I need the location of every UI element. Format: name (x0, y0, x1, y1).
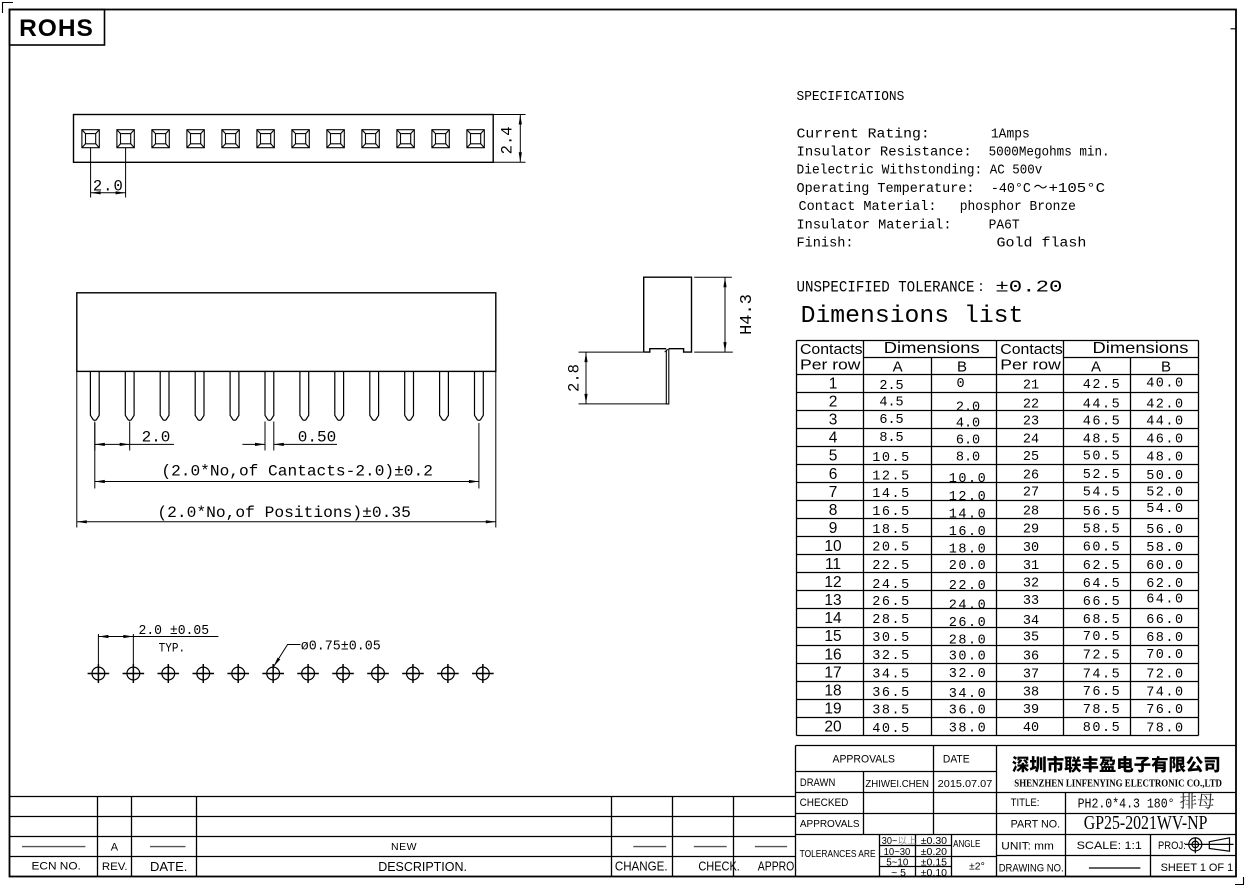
svg-text:0: 0 (956, 377, 964, 392)
svg-text:52.5: 52.5 (1083, 468, 1121, 483)
svg-text:30~: 30~ (882, 836, 898, 847)
svg-text:28: 28 (1023, 504, 1039, 519)
svg-text:5: 5 (829, 448, 838, 465)
svg-text:2.4: 2.4 (499, 126, 517, 154)
svg-text:8: 8 (829, 502, 838, 519)
svg-text:2.5: 2.5 (879, 379, 903, 394)
svg-text:±0.30: ±0.30 (921, 836, 948, 847)
svg-text:8.0: 8.0 (956, 450, 980, 465)
svg-text:2.0: 2.0 (142, 429, 171, 447)
svg-text:A: A (1091, 359, 1101, 376)
svg-text:18.0: 18.0 (949, 543, 987, 558)
svg-text:±0.20: ±0.20 (921, 847, 948, 858)
svg-text:74.0: 74.0 (1146, 685, 1184, 700)
svg-text:36.0: 36.0 (949, 703, 987, 718)
svg-text:UNSPECIFIED TOLERANCE: UNSPECIFIED TOLERANCE (797, 279, 975, 297)
svg-text:30.5: 30.5 (872, 631, 910, 646)
svg-text:27: 27 (1023, 485, 1039, 500)
svg-text:40: 40 (1023, 721, 1039, 736)
svg-text:Dimensions: Dimensions (1093, 340, 1189, 357)
svg-text:6: 6 (829, 466, 838, 483)
svg-text:4: 4 (829, 430, 838, 447)
svg-text:72.5: 72.5 (1083, 648, 1121, 663)
svg-text:Contacts: Contacts (1000, 341, 1063, 358)
svg-text:26.0: 26.0 (949, 616, 987, 631)
svg-text:22.5: 22.5 (872, 559, 910, 574)
svg-text:ø0.75±0.05: ø0.75±0.05 (301, 640, 381, 655)
svg-text:ECN NO.: ECN NO. (32, 861, 81, 873)
svg-text:32: 32 (1023, 577, 1039, 592)
svg-text:PA6T: PA6T (989, 218, 1020, 233)
svg-text:54.0: 54.0 (1146, 502, 1184, 517)
svg-text:24.0: 24.0 (949, 599, 987, 614)
svg-text:GP25-2021WV-NP: GP25-2021WV-NP (1084, 813, 1208, 834)
svg-text:38.0: 38.0 (949, 721, 987, 736)
svg-text:A: A (893, 359, 903, 376)
svg-text:22: 22 (1023, 397, 1039, 412)
svg-text:Insulator Resistance:: Insulator Resistance: (797, 146, 972, 161)
svg-text:60.0: 60.0 (1146, 559, 1184, 574)
svg-text:Per row: Per row (1000, 357, 1061, 374)
svg-text:76.5: 76.5 (1083, 685, 1121, 700)
svg-text:50.5: 50.5 (1083, 450, 1121, 465)
svg-text:(2.0*No,of Cantacts-2.0)±0.2: (2.0*No,of Cantacts-2.0)±0.2 (161, 463, 433, 481)
svg-text:DRAWN: DRAWN (800, 777, 835, 789)
svg-text:32.0: 32.0 (949, 667, 987, 682)
svg-text:66.5: 66.5 (1083, 595, 1121, 610)
svg-text:20.5: 20.5 (872, 540, 910, 555)
svg-text:SHENZHEN LINFENYING ELECTRONIC: SHENZHEN LINFENYING ELECTRONIC CO.,LTD (1014, 778, 1222, 790)
svg-text:5~10: 5~10 (886, 858, 909, 869)
svg-text:DATE: DATE (943, 754, 970, 766)
svg-text:34: 34 (1023, 614, 1039, 629)
svg-text:52.0: 52.0 (1146, 485, 1184, 500)
svg-text:54.5: 54.5 (1083, 485, 1121, 500)
svg-text:30.0: 30.0 (949, 649, 987, 664)
svg-text:70.0: 70.0 (1146, 648, 1184, 663)
svg-text:14.0: 14.0 (949, 507, 987, 522)
svg-text:80.5: 80.5 (1083, 721, 1121, 736)
svg-text:Insulator Material:: Insulator Material: (797, 218, 952, 233)
svg-text:62.5: 62.5 (1083, 559, 1121, 574)
svg-text:PART NO.: PART NO. (1011, 819, 1061, 831)
svg-text:36: 36 (1023, 649, 1039, 664)
svg-text:68.5: 68.5 (1083, 613, 1121, 628)
svg-text:SCALE: 1:1: SCALE: 1:1 (1077, 840, 1142, 852)
svg-text:NEW: NEW (391, 841, 417, 853)
svg-text:Per row: Per row (800, 357, 861, 374)
svg-text:20.0: 20.0 (949, 559, 987, 574)
svg-text:23: 23 (1023, 415, 1039, 430)
svg-text:62.0: 62.0 (1146, 577, 1184, 592)
svg-text:34.5: 34.5 (872, 667, 910, 682)
svg-text:PH2.0*4.3 180°: PH2.0*4.3 180° (1078, 798, 1175, 813)
svg-text:B: B (957, 359, 967, 376)
svg-text:7: 7 (829, 484, 838, 501)
svg-text:64.0: 64.0 (1146, 593, 1184, 608)
svg-text:31: 31 (1023, 559, 1039, 574)
svg-text:12: 12 (824, 574, 841, 591)
svg-text:Finish:: Finish: (797, 237, 854, 252)
svg-text:74.5: 74.5 (1083, 667, 1121, 682)
svg-text:phosphor Bronze: phosphor Bronze (960, 200, 1076, 215)
svg-text:25: 25 (1023, 450, 1039, 465)
svg-text:2.8: 2.8 (566, 364, 584, 392)
svg-text:28.0: 28.0 (949, 634, 987, 649)
svg-text:TOLERANCES ARE: TOLERANCES ARE (800, 848, 876, 860)
svg-text:2015.07.07: 2015.07.07 (938, 778, 993, 790)
svg-text:12.5: 12.5 (872, 469, 910, 484)
svg-text:6.0: 6.0 (956, 433, 980, 448)
svg-text:42.5: 42.5 (1083, 378, 1121, 393)
svg-text:78.5: 78.5 (1083, 703, 1121, 718)
svg-text:68.0: 68.0 (1146, 631, 1184, 646)
svg-text:DATE.: DATE. (150, 859, 187, 874)
svg-text:±0.10: ±0.10 (921, 868, 948, 879)
svg-text:18: 18 (824, 682, 841, 699)
svg-text:TYP.: TYP. (159, 641, 186, 656)
svg-text:CHECK.: CHECK. (698, 860, 740, 874)
svg-text:39: 39 (1023, 703, 1039, 718)
svg-text:2.0 ±0.05: 2.0 ±0.05 (139, 624, 210, 639)
svg-text:1: 1 (829, 376, 838, 393)
svg-text:DESCRIPTION.: DESCRIPTION. (378, 859, 467, 874)
svg-text:ANGLE: ANGLE (953, 838, 980, 850)
svg-text:11: 11 (825, 556, 841, 573)
svg-text:16: 16 (824, 646, 841, 663)
svg-text:Current Rating:: Current Rating: (797, 127, 930, 142)
svg-text:24: 24 (1023, 433, 1039, 448)
svg-text:33: 33 (1023, 594, 1039, 609)
svg-text:35: 35 (1023, 631, 1039, 646)
svg-text:26: 26 (1023, 468, 1039, 483)
svg-text:TITLE:: TITLE: (1011, 797, 1040, 809)
svg-text:72.0: 72.0 (1146, 667, 1184, 682)
svg-text:6.5: 6.5 (879, 413, 903, 428)
svg-text:38.5: 38.5 (872, 703, 910, 718)
svg-text:66.0: 66.0 (1146, 613, 1184, 628)
svg-text:3: 3 (829, 412, 838, 429)
svg-text:16.0: 16.0 (949, 525, 987, 540)
svg-text:14: 14 (824, 610, 842, 627)
svg-text:19: 19 (824, 700, 841, 717)
svg-text:50.0: 50.0 (1146, 469, 1184, 484)
svg-text:46.0: 46.0 (1146, 433, 1184, 448)
svg-text:UNIT: mm: UNIT: mm (1001, 841, 1054, 853)
svg-text:24.5: 24.5 (872, 578, 910, 593)
svg-text:78.0: 78.0 (1146, 721, 1184, 736)
svg-text:29: 29 (1023, 522, 1039, 537)
svg-text:30: 30 (1023, 541, 1039, 556)
svg-text:10.5: 10.5 (872, 451, 910, 466)
svg-text:58.5: 58.5 (1083, 522, 1121, 537)
svg-text:APPRO.: APPRO. (758, 860, 797, 874)
svg-text:26.5: 26.5 (872, 595, 910, 610)
svg-text:ROHS: ROHS (19, 15, 94, 42)
svg-text:76.0: 76.0 (1146, 703, 1184, 718)
svg-text:REV.: REV. (102, 861, 128, 873)
svg-text:21: 21 (1023, 379, 1039, 394)
svg-text:48.0: 48.0 (1146, 451, 1184, 466)
svg-text:5000Megohms min.: 5000Megohms min. (989, 146, 1110, 161)
svg-text:PROJ:: PROJ: (1158, 840, 1186, 852)
svg-text:CHANGE.: CHANGE. (615, 860, 668, 874)
svg-text:38: 38 (1023, 685, 1039, 700)
svg-text:B: B (1161, 359, 1171, 376)
svg-text:~ 5: ~ 5 (891, 868, 906, 879)
svg-text:15: 15 (824, 628, 841, 645)
svg-text:4.5: 4.5 (879, 396, 903, 411)
svg-text:1Amps: 1Amps (991, 127, 1030, 142)
svg-text:A: A (111, 842, 119, 854)
svg-text:17: 17 (824, 664, 841, 681)
svg-text:48.5: 48.5 (1083, 433, 1121, 448)
svg-text:10: 10 (824, 538, 842, 555)
svg-text:64.5: 64.5 (1083, 577, 1121, 592)
svg-text:10~30: 10~30 (884, 847, 911, 858)
svg-text:Gold flash: Gold flash (997, 237, 1087, 252)
svg-text:4.0: 4.0 (956, 417, 980, 432)
svg-text:-40°C: -40°C (991, 182, 1031, 197)
svg-text:42.0: 42.0 (1146, 397, 1184, 412)
svg-text:13: 13 (824, 592, 841, 609)
svg-text:34.0: 34.0 (949, 687, 987, 702)
svg-text:18.5: 18.5 (872, 523, 910, 538)
svg-text:40.0: 40.0 (1146, 376, 1184, 391)
svg-text:Dielectric Withstonding:: Dielectric Withstonding: (797, 164, 983, 179)
svg-text:32.5: 32.5 (872, 649, 910, 664)
svg-text:(2.0*No,of Positions)±0.35: (2.0*No,of Positions)±0.35 (157, 504, 411, 522)
svg-text:ZHIWEI.CHEN: ZHIWEI.CHEN (865, 778, 929, 790)
svg-text:0.50: 0.50 (298, 429, 336, 447)
svg-text:44.5: 44.5 (1083, 397, 1121, 412)
svg-text:20: 20 (824, 718, 842, 735)
svg-text:AC 500v: AC 500v (990, 164, 1042, 179)
svg-text:2.0: 2.0 (956, 400, 980, 415)
svg-text:28.5: 28.5 (872, 613, 910, 628)
svg-text:+105°C: +105°C (1049, 182, 1106, 197)
svg-text:DRAWING NO.: DRAWING NO. (999, 863, 1064, 875)
svg-text:SHEET 1 OF 1: SHEET 1 OF 1 (1161, 862, 1234, 874)
svg-text:H4.3: H4.3 (738, 294, 757, 335)
svg-text:2.0: 2.0 (93, 178, 124, 196)
svg-text:36.5: 36.5 (872, 686, 910, 701)
svg-text:60.5: 60.5 (1083, 540, 1121, 555)
svg-text:40.5: 40.5 (872, 722, 910, 737)
svg-text:8.5: 8.5 (879, 431, 903, 446)
svg-text:Dimensions: Dimensions (884, 340, 980, 357)
svg-text:56.0: 56.0 (1146, 523, 1184, 538)
svg-text:9: 9 (829, 520, 838, 537)
svg-text:CHECKED: CHECKED (800, 797, 849, 809)
svg-text:±0.15: ±0.15 (921, 858, 948, 869)
svg-text:APPROVALS: APPROVALS (833, 754, 896, 766)
svg-text:Operating Temperature:: Operating Temperature: (797, 182, 975, 197)
svg-text:10.0: 10.0 (949, 472, 987, 487)
svg-text:2: 2 (829, 394, 838, 411)
svg-text:14.5: 14.5 (872, 487, 910, 502)
svg-text:22.0: 22.0 (949, 579, 987, 594)
svg-text:SPECIFICATIONS: SPECIFICATIONS (797, 90, 905, 105)
svg-text:Contact Material:: Contact Material: (799, 200, 937, 215)
svg-text:44.0: 44.0 (1146, 415, 1184, 430)
svg-text:12.0: 12.0 (949, 490, 987, 505)
svg-text:58.0: 58.0 (1146, 541, 1184, 556)
svg-text:Contacts: Contacts (800, 341, 863, 358)
svg-text:37: 37 (1023, 667, 1039, 682)
svg-text:±0.20: ±0.20 (995, 279, 1062, 298)
svg-text:16.5: 16.5 (872, 505, 910, 520)
svg-text:Dimensions list: Dimensions list (801, 303, 1024, 330)
svg-text:±2°: ±2° (969, 861, 985, 873)
svg-text:46.5: 46.5 (1083, 415, 1121, 430)
svg-text:56.5: 56.5 (1083, 505, 1121, 520)
svg-text:70.5: 70.5 (1083, 630, 1121, 645)
svg-text:APPROVALS: APPROVALS (800, 818, 860, 830)
